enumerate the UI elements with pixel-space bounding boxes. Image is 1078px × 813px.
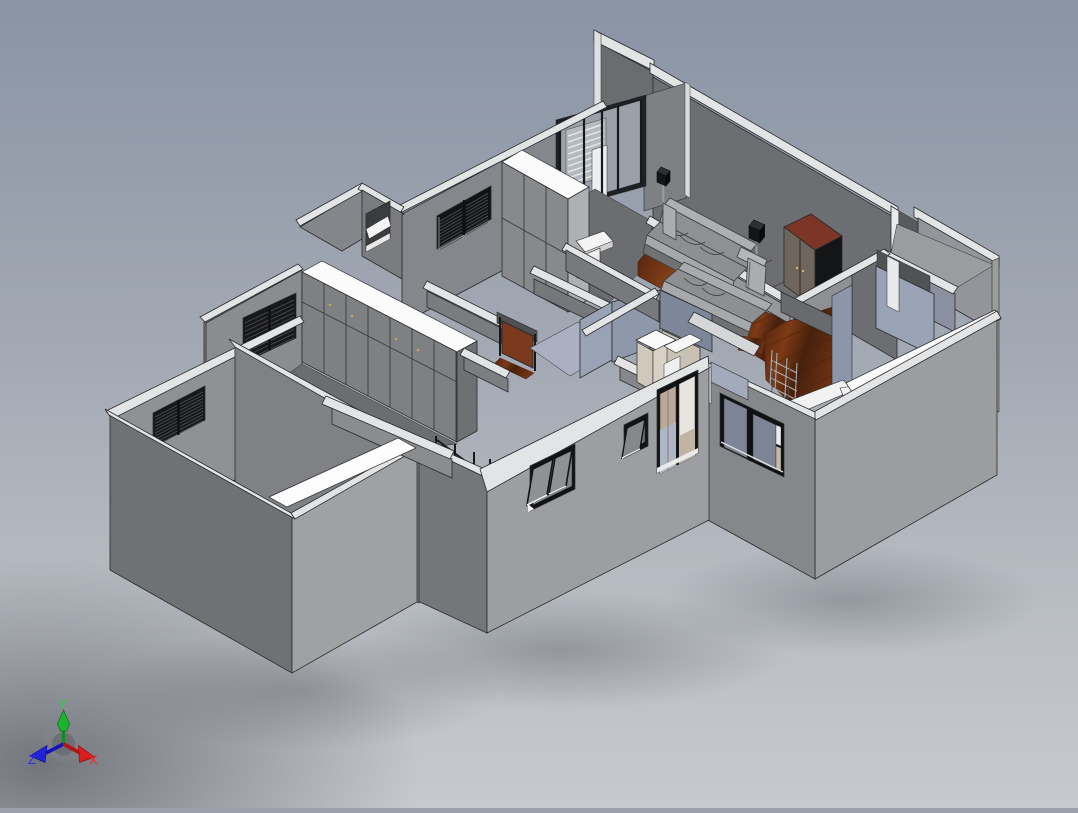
svg-text:X: X: [89, 752, 98, 767]
svg-text:Z: Z: [28, 752, 36, 767]
svg-text:Y: Y: [59, 696, 68, 711]
